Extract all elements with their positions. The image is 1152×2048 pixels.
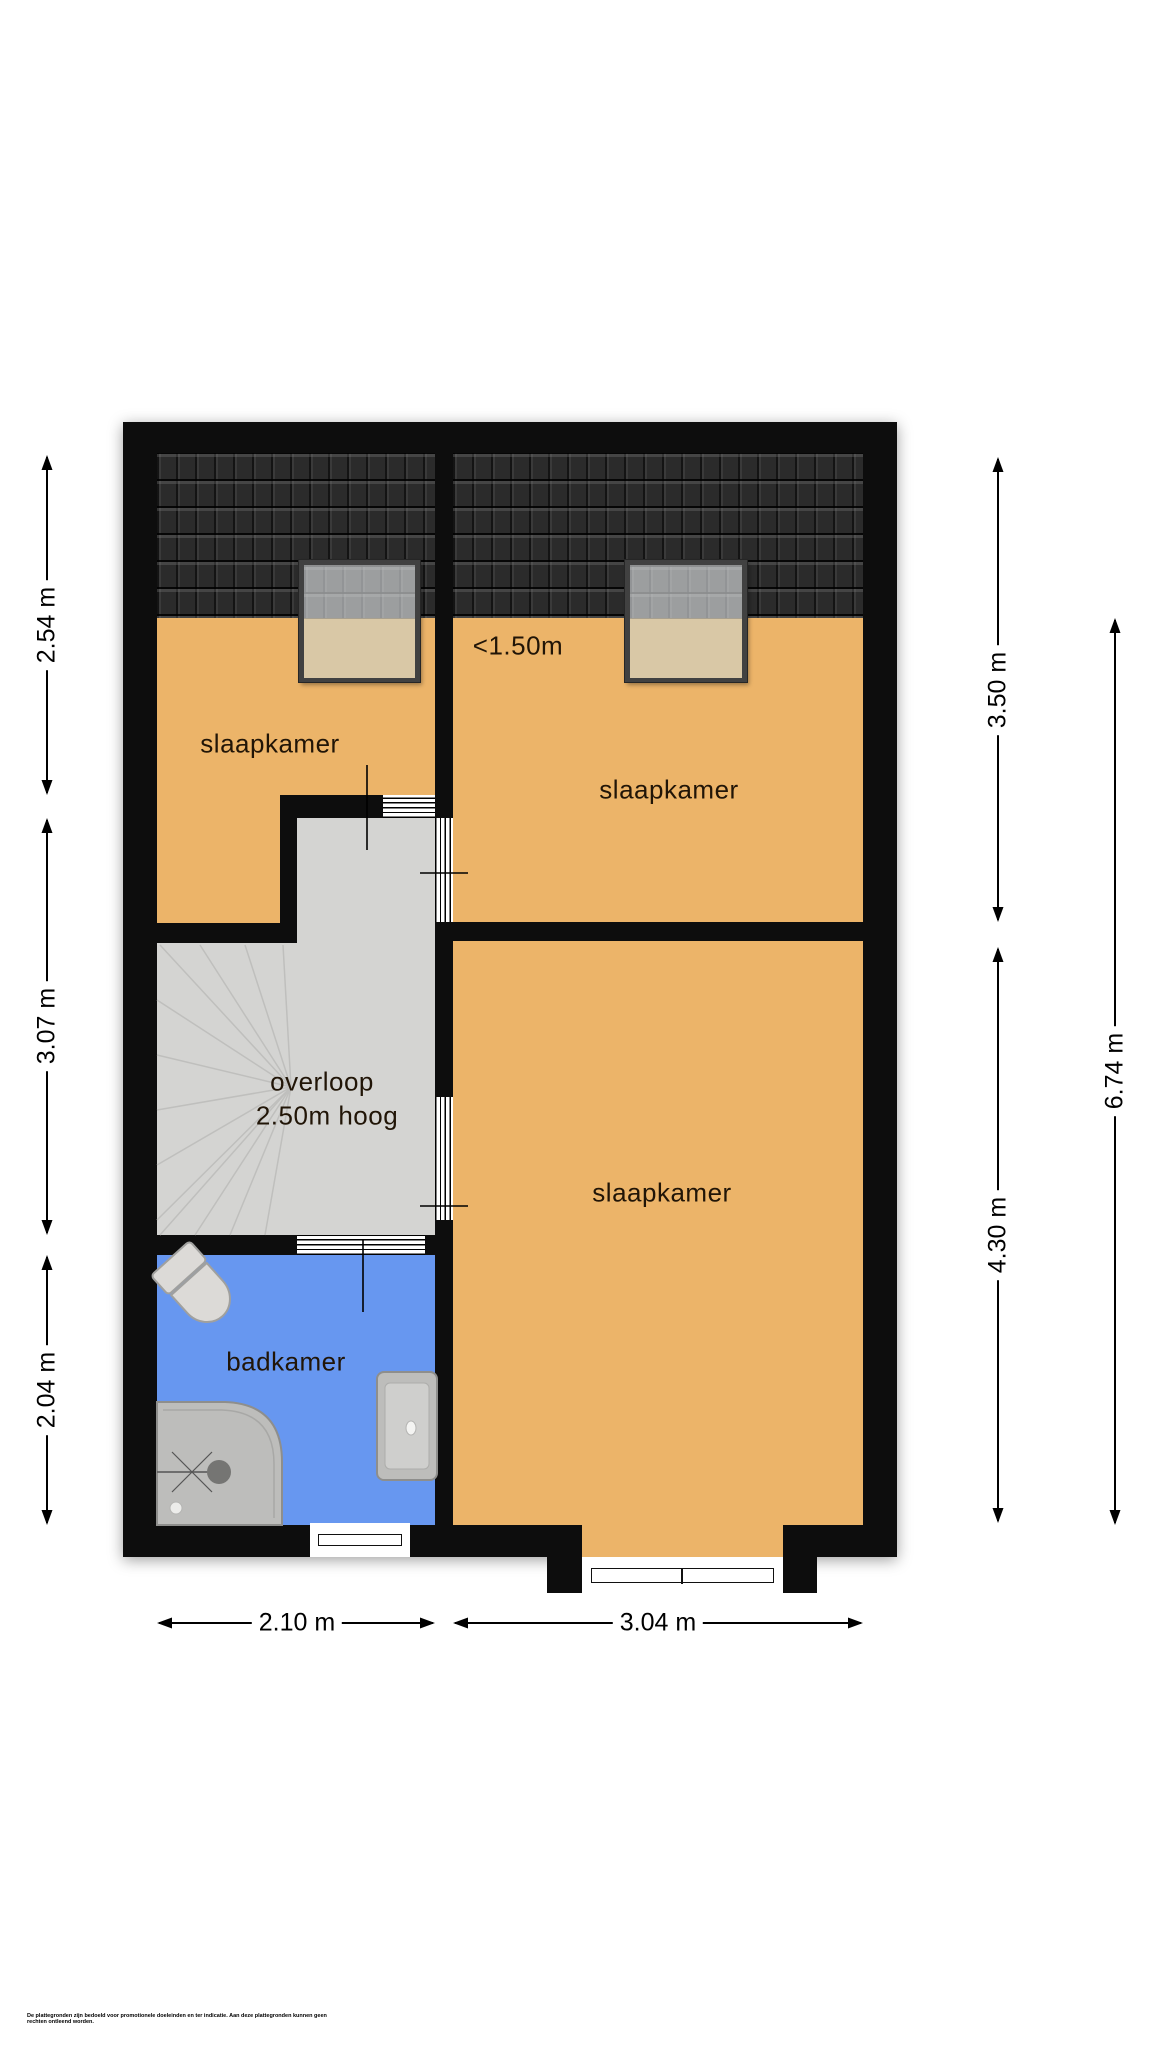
label-bathroom: badkamer: [226, 1347, 346, 1378]
dim-left-1: 2.54 m: [32, 580, 63, 670]
dim-left-3: 2.04 m: [32, 1345, 63, 1435]
label-roof-height-note: <1.50m: [473, 631, 563, 662]
dim-right-2: 4.30 m: [983, 1190, 1014, 1280]
floor-plan: slaapkamer slaapkamer slaapkamer <1.50m …: [0, 0, 1152, 2048]
label-bedroom-1: slaapkamer: [200, 729, 339, 760]
label-landing-height: 2.50m hoog: [256, 1101, 398, 1132]
dim-left-2: 3.07 m: [32, 981, 63, 1071]
door-ticks: [363, 765, 468, 1312]
dim-right-3: 6.74 m: [1100, 1026, 1131, 1116]
shower: [157, 1402, 282, 1525]
toilet: [151, 1241, 242, 1334]
plan-overlay: [0, 0, 1152, 2048]
label-landing: overloop: [270, 1067, 374, 1098]
label-bedroom-2: slaapkamer: [599, 775, 738, 806]
dim-bottom-1: 2.10 m: [252, 1608, 342, 1639]
dim-right-1: 3.50 m: [983, 645, 1014, 735]
label-bedroom-3: slaapkamer: [592, 1178, 731, 1209]
bathtub: [377, 1372, 437, 1480]
disclaimer-text: De plattegronden zijn bedoeld voor promo…: [27, 2013, 327, 2025]
dim-bottom-2: 3.04 m: [613, 1608, 703, 1639]
